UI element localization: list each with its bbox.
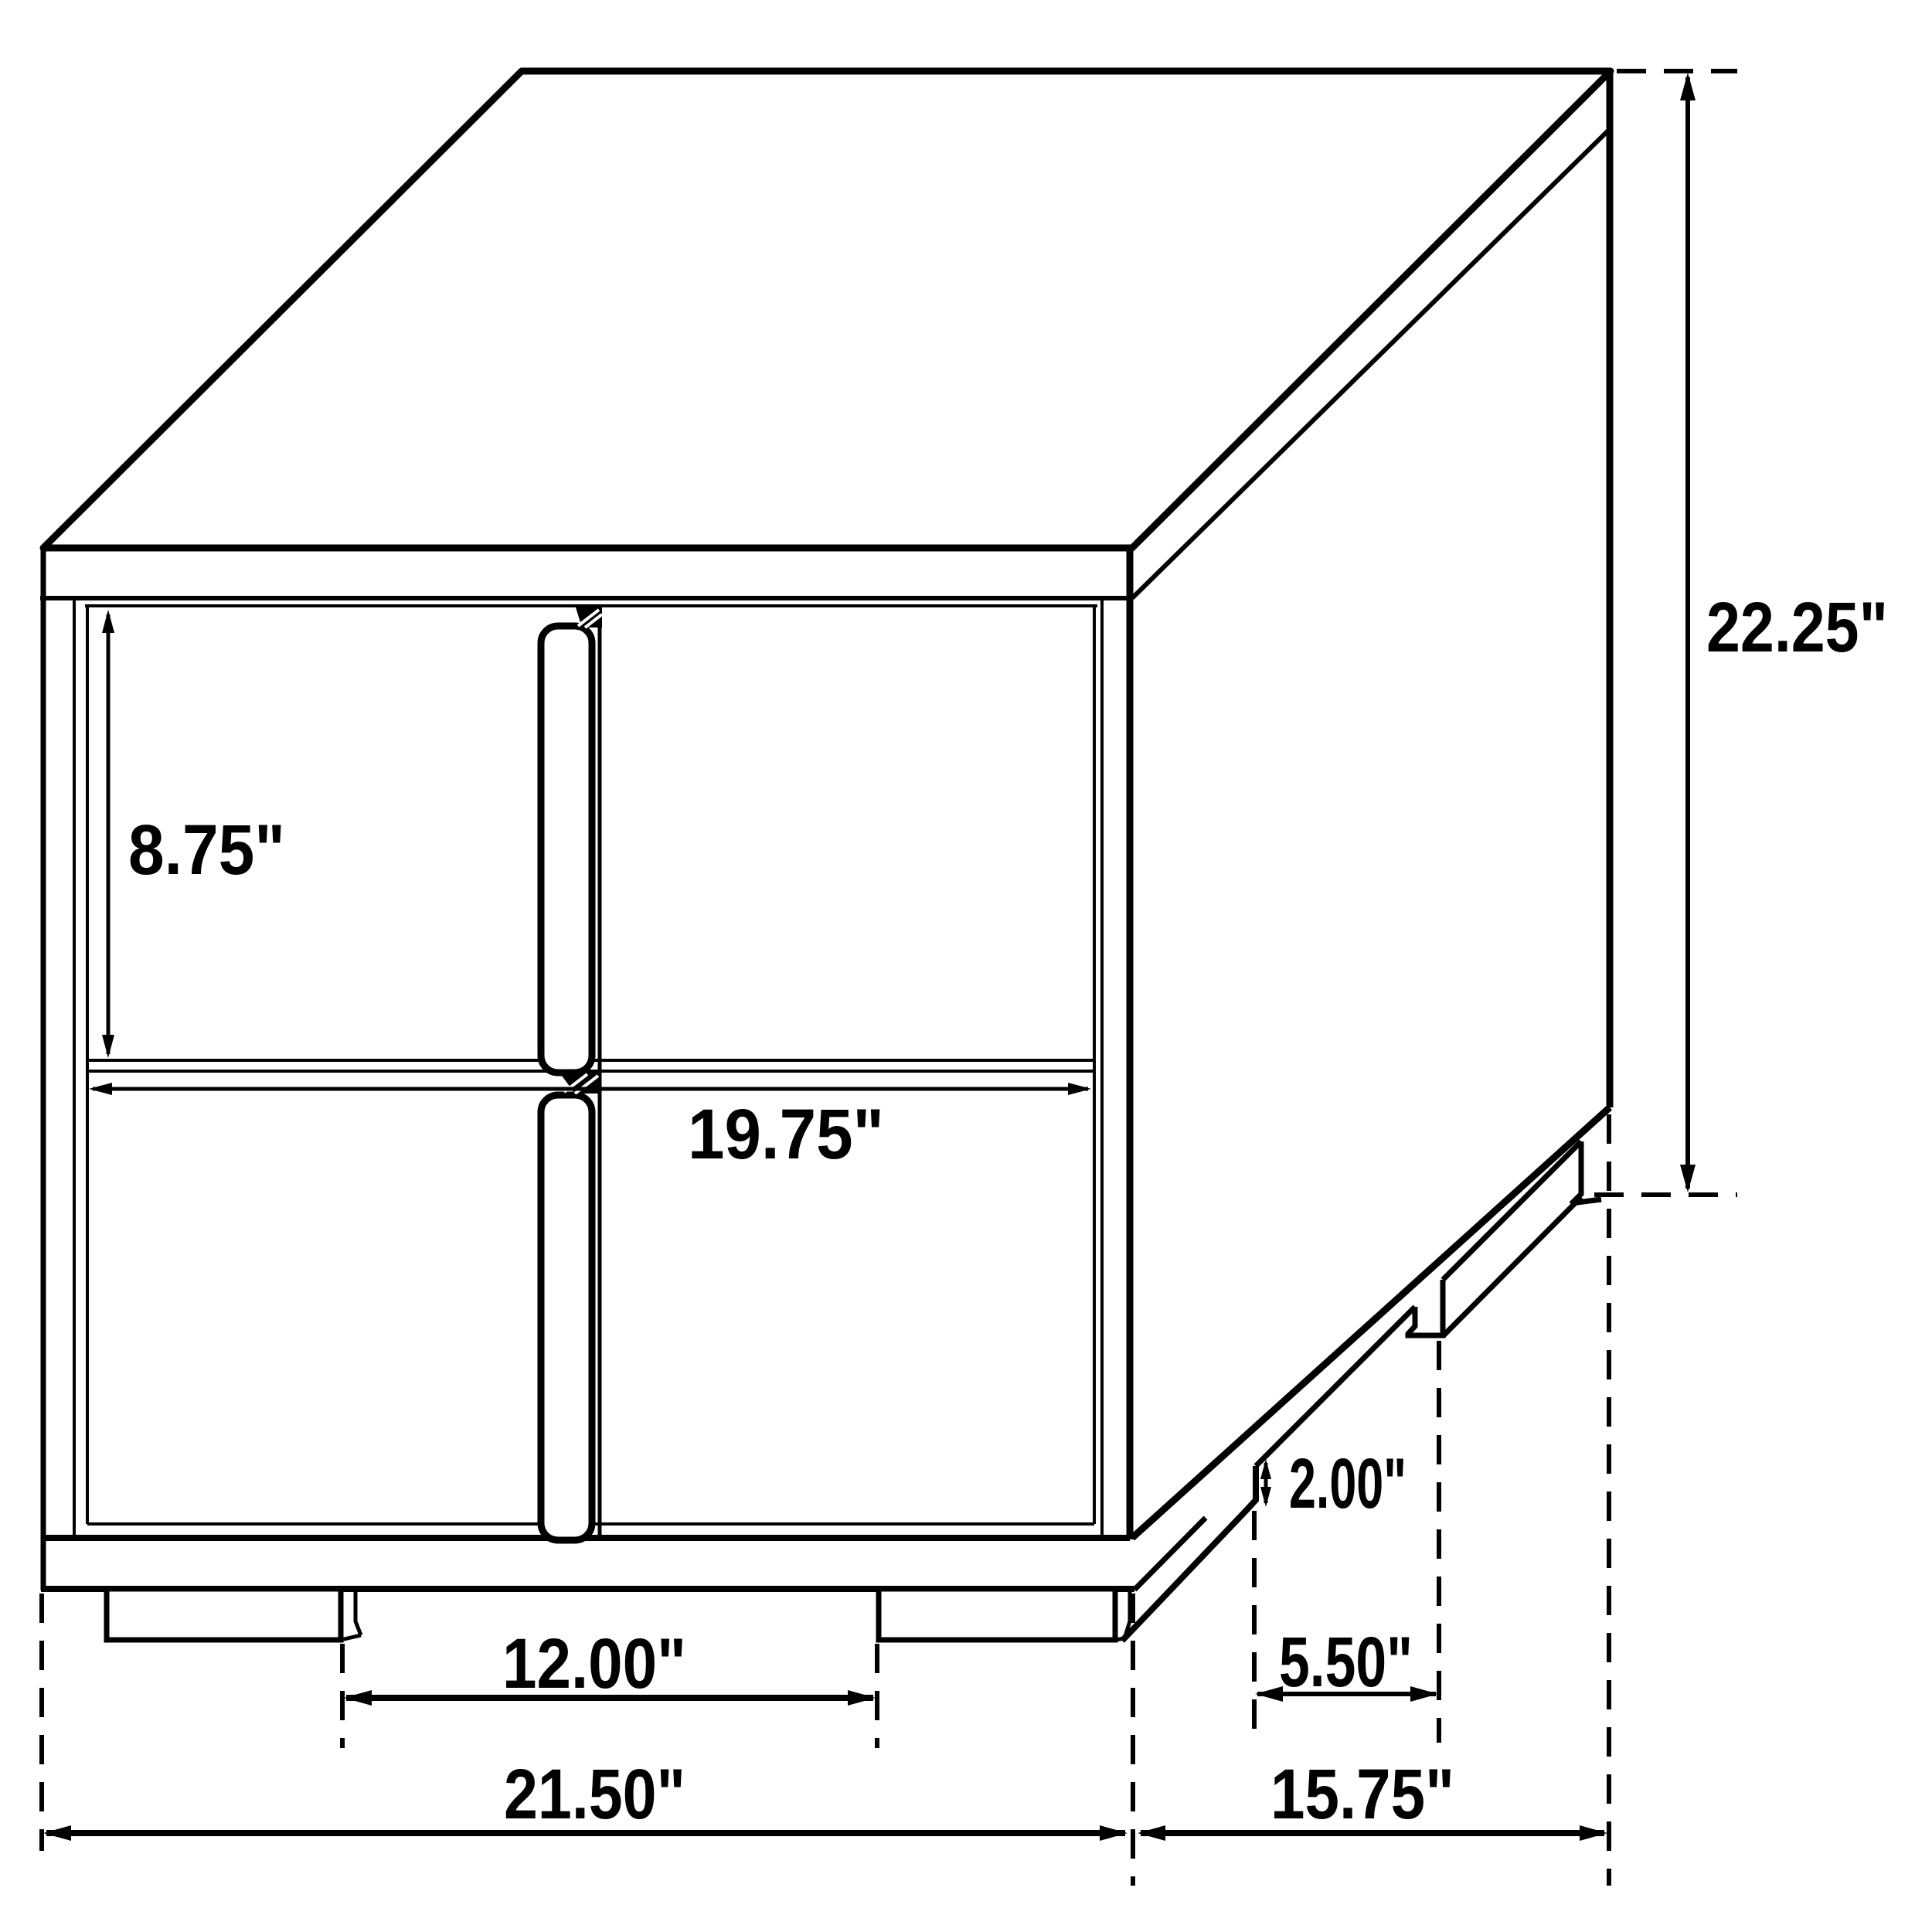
svg-text:15.75": 15.75" xyxy=(1270,1755,1454,1834)
svg-text:5.50": 5.50" xyxy=(1279,1623,1413,1702)
svg-text:22.25": 22.25" xyxy=(1706,588,1888,667)
svg-text:12.00": 12.00" xyxy=(502,1624,686,1703)
svg-text:21.50": 21.50" xyxy=(504,1755,685,1834)
svg-text:8.75": 8.75" xyxy=(128,811,285,889)
svg-text:2.00": 2.00" xyxy=(1289,1444,1406,1523)
svg-text:19.75": 19.75" xyxy=(688,1095,884,1174)
